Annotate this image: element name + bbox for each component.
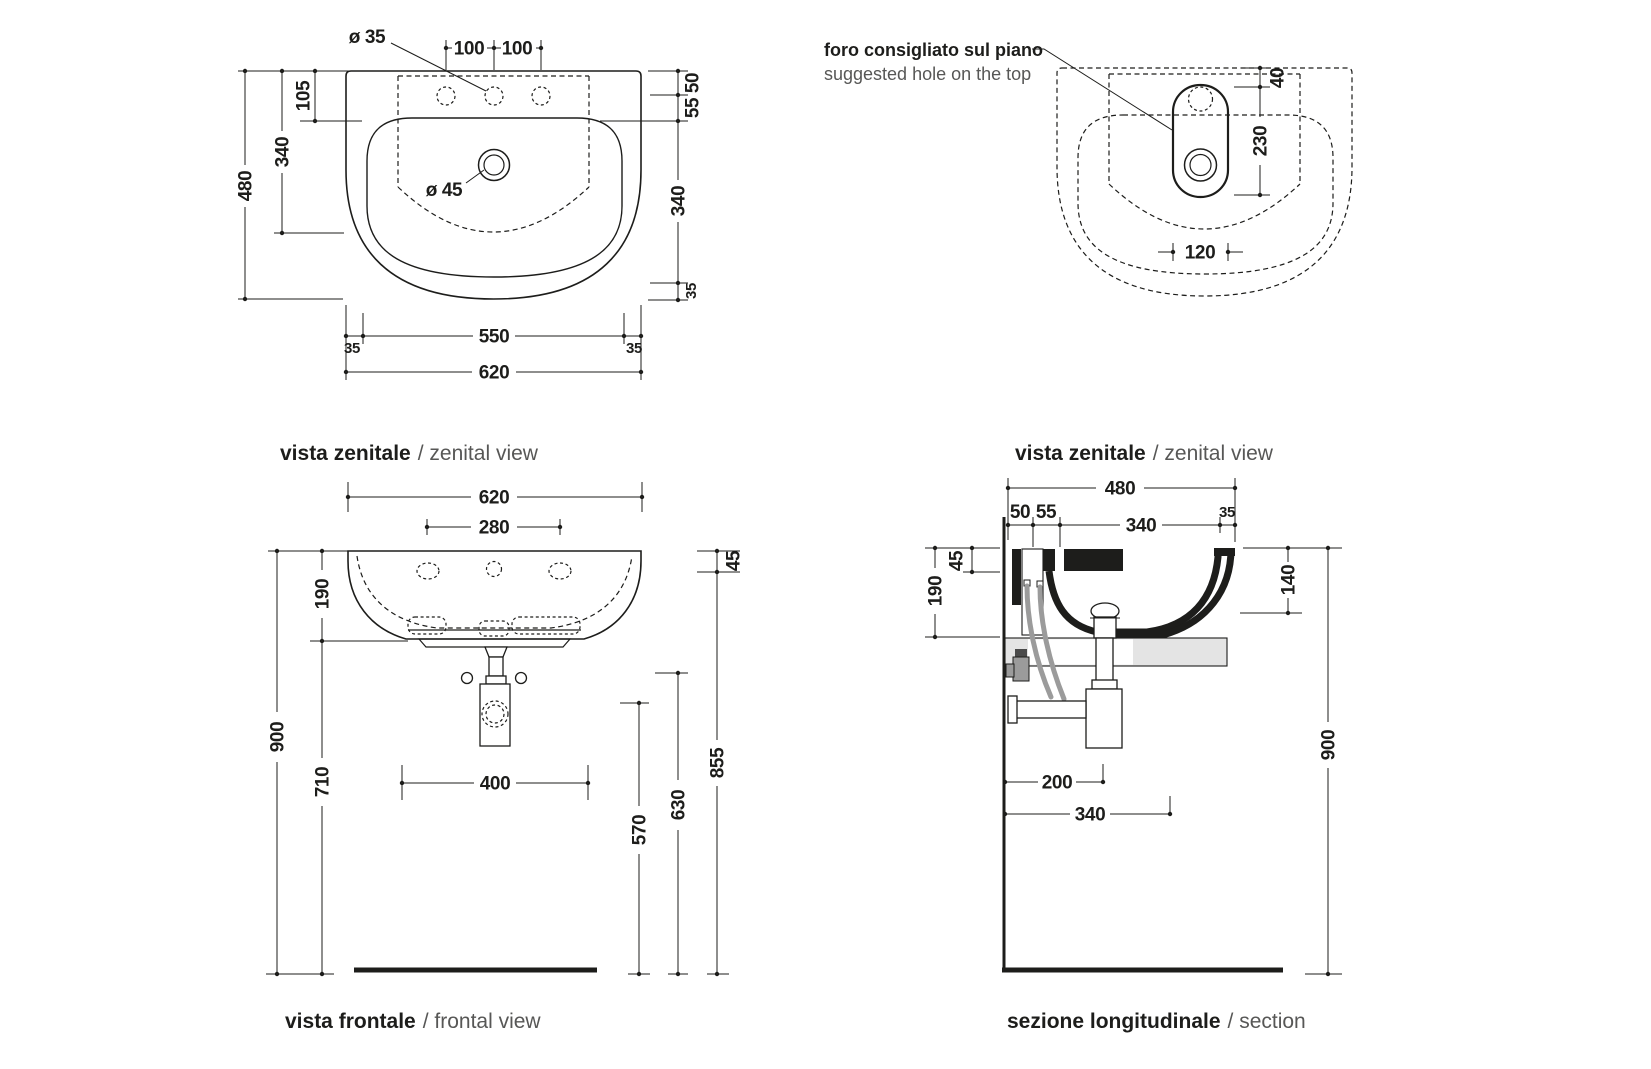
mounting-bolt-right <box>516 673 527 684</box>
faucet-hole-left-dashed <box>417 563 439 579</box>
dim-55: 55 <box>683 97 704 118</box>
hole-plan-caption-regular: / zenital view <box>1153 442 1274 465</box>
section-view: 480 50 55 340 35 45 190 140 200 340 900 … <box>925 478 1342 1033</box>
drain-plug-body <box>1094 617 1116 638</box>
dim-hole-spacing-left: 100 <box>454 39 485 60</box>
trap-body <box>480 684 510 746</box>
faucet-hole-right <box>532 87 550 105</box>
hole-plan-note-en: suggested hole on the top <box>824 64 1031 84</box>
dim-340-right: 340 <box>669 186 690 217</box>
dim-35-bottom-right: 35 <box>626 340 642 357</box>
dim-230: 230 <box>1251 126 1272 157</box>
dim-140: 140 <box>1279 565 1300 596</box>
hole-plan-caption-bold: vista zenitale <box>1015 442 1146 465</box>
dim-570: 570 <box>630 815 651 846</box>
dim-855: 855 <box>708 747 729 778</box>
hole-plan-note: foro consigliato sul piano <box>824 40 1043 60</box>
section-dimension-ticks <box>935 488 1328 974</box>
dim-620: 620 <box>479 488 510 509</box>
dim-105: 105 <box>294 80 315 111</box>
drain-flange <box>485 647 507 657</box>
suggested-hole-outline <box>1173 85 1228 197</box>
dim-35: 35 <box>1219 504 1235 521</box>
dim-190: 190 <box>313 579 334 610</box>
drain-hole-outer <box>1185 149 1217 181</box>
dim-50: 50 <box>683 73 704 93</box>
rim-front-section <box>1214 548 1235 556</box>
valve-stub <box>1006 664 1014 677</box>
dim-710: 710 <box>313 767 334 798</box>
basin-front-outline <box>348 551 641 639</box>
slab-opening <box>1028 639 1133 664</box>
faucet-hole-left <box>437 87 455 105</box>
plan-caption: vista zenitale/ zenital view <box>280 442 539 465</box>
underside-channel-left <box>408 617 446 634</box>
faucet-hole-center <box>485 87 503 105</box>
faucet-hole-center-dashed <box>487 562 502 577</box>
dim-190: 190 <box>926 576 947 607</box>
waste-pipe-horizontal <box>1016 701 1086 718</box>
section-tailpipe <box>1096 638 1113 684</box>
section-dimension-lines <box>925 478 1342 974</box>
washbasin-technical-drawing: ø 35 ø 45 100 100 105 340 480 50 55 340 … <box>0 0 1651 1064</box>
section-caption-bold: sezione longitudinale <box>1007 1010 1221 1033</box>
section-drawing <box>1002 517 1283 970</box>
dim-120: 120 <box>1185 243 1216 264</box>
underside-channel-right <box>512 617 580 634</box>
plan-basin-outline <box>346 43 641 299</box>
technical-drawing-sheet: ø 35 ø 45 100 100 105 340 480 50 55 340 … <box>0 0 1651 1064</box>
dim-45: 45 <box>724 550 745 571</box>
drain-hole-inner <box>1190 155 1211 176</box>
note-bold: foro consigliato sul piano <box>824 40 1043 60</box>
dim-45: 45 <box>947 550 968 571</box>
section-trap-body <box>1086 689 1122 748</box>
front-caption: vista frontale/ frontal view <box>285 1010 541 1033</box>
dim-480: 480 <box>1105 479 1136 500</box>
dim-200: 200 <box>1042 773 1073 794</box>
label-drain-diameter: ø 45 <box>426 180 463 201</box>
front-caption-regular: / frontal view <box>423 1010 542 1033</box>
basin-inner-rim <box>367 118 622 277</box>
faucet-hole-right-dashed <box>549 563 571 579</box>
trap-coupling <box>486 676 506 684</box>
waste-pipe-wall-flange <box>1008 696 1017 723</box>
label-faucet-diameter: ø 35 <box>349 27 386 48</box>
dim-630: 630 <box>669 790 690 821</box>
wall-bracket <box>1012 549 1021 605</box>
drain-hole-outer <box>479 150 510 181</box>
dim-900: 900 <box>268 722 289 753</box>
dim-40: 40 <box>1268 68 1289 88</box>
section-caption: sezione longitudinale/ section <box>1007 1010 1306 1033</box>
dim-340-bottom: 340 <box>1075 805 1106 826</box>
mounting-bolt-left <box>462 673 473 684</box>
front-caption-bold: vista frontale <box>285 1010 416 1033</box>
hole-plan-view: 40 230 120 foro consigliato sul piano su… <box>824 40 1352 465</box>
plan-view: ø 35 ø 45 100 100 105 340 480 50 55 340 … <box>236 27 704 465</box>
front-basin-drawing <box>348 551 641 970</box>
deck-faucet-hole <box>1055 549 1064 571</box>
leader-lines <box>391 43 486 183</box>
dim-400: 400 <box>480 774 511 795</box>
dim-35-bottom-left: 35 <box>344 340 360 357</box>
dim-620: 620 <box>479 363 510 384</box>
dim-hole-spacing-right: 100 <box>502 39 533 60</box>
shutoff-valve <box>1013 657 1029 681</box>
section-dimensions: 480 50 55 340 35 45 190 140 200 340 900 <box>925 478 1342 974</box>
dim-55: 55 <box>1036 502 1057 523</box>
basin-foot <box>419 639 570 647</box>
dim-340-left: 340 <box>273 137 294 168</box>
plan-dimensions: ø 35 ø 45 100 100 105 340 480 50 55 340 … <box>236 27 704 384</box>
note-regular: suggested hole on the top <box>824 64 1031 84</box>
plan-caption-regular: / zenital view <box>418 442 539 465</box>
dim-280: 280 <box>479 518 510 539</box>
hole-plan-dimension-lines <box>1158 68 1270 261</box>
drain-tailpipe <box>489 657 503 676</box>
basin-outer-outline <box>346 71 641 299</box>
section-trap-coupling <box>1092 680 1117 689</box>
section-caption-regular: / section <box>1228 1010 1306 1033</box>
dim-900: 900 <box>1319 730 1340 761</box>
hole-plan-caption: vista zenitale/ zenital view <box>1015 442 1274 465</box>
dim-340-top: 340 <box>1126 516 1157 537</box>
dim-35-right: 35 <box>683 283 700 299</box>
front-view: 620 280 190 900 710 45 400 570 630 855 v… <box>266 482 745 1033</box>
drain-hole-inner <box>484 155 504 175</box>
faucet-hole-dashed <box>1189 87 1213 111</box>
basin-hidden-edges <box>398 76 589 232</box>
inner-bowl-dashed <box>357 556 632 628</box>
dim-550: 550 <box>479 327 510 348</box>
dim-50: 50 <box>1010 502 1030 523</box>
dim-480: 480 <box>236 171 257 202</box>
plan-caption-bold: vista zenitale <box>280 442 411 465</box>
note-leader-line <box>1032 49 1172 130</box>
